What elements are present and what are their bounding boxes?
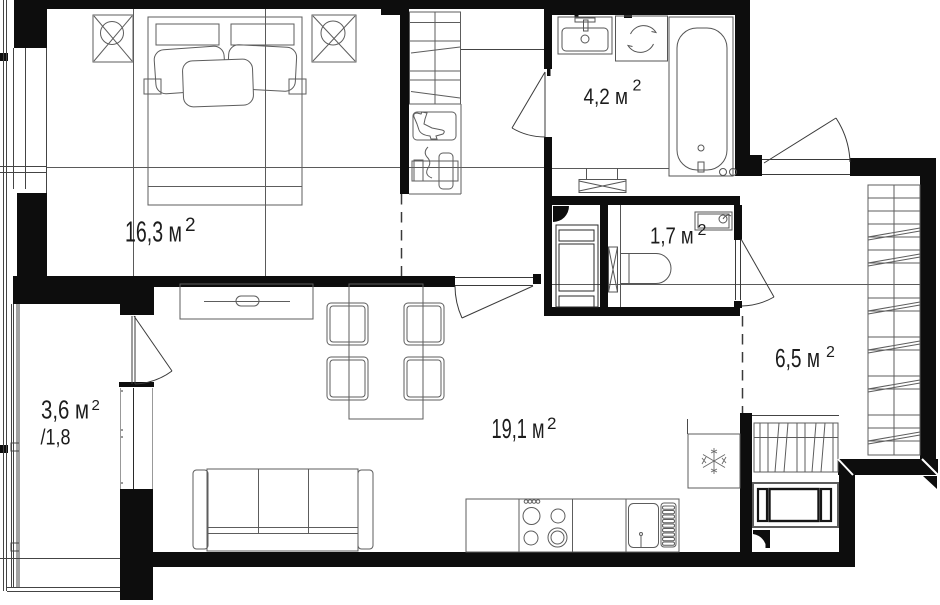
svg-text:4,2 м: 4,2 м [584,85,629,110]
svg-text:/1,8: /1,8 [41,426,71,450]
svg-text:2: 2 [698,222,707,239]
svg-text:2: 2 [633,78,642,95]
svg-text:16,3 м: 16,3 м [125,217,182,249]
svg-text:2: 2 [547,414,556,433]
svg-text:2: 2 [92,397,100,414]
svg-text:2: 2 [826,344,835,361]
svg-text:1,7 м: 1,7 м [650,224,694,250]
svg-text:6,5 м: 6,5 м [775,343,820,373]
svg-text:2: 2 [185,215,196,236]
svg-text:19,1 м: 19,1 м [492,413,545,444]
svg-text:3,6 м: 3,6 м [41,395,89,424]
